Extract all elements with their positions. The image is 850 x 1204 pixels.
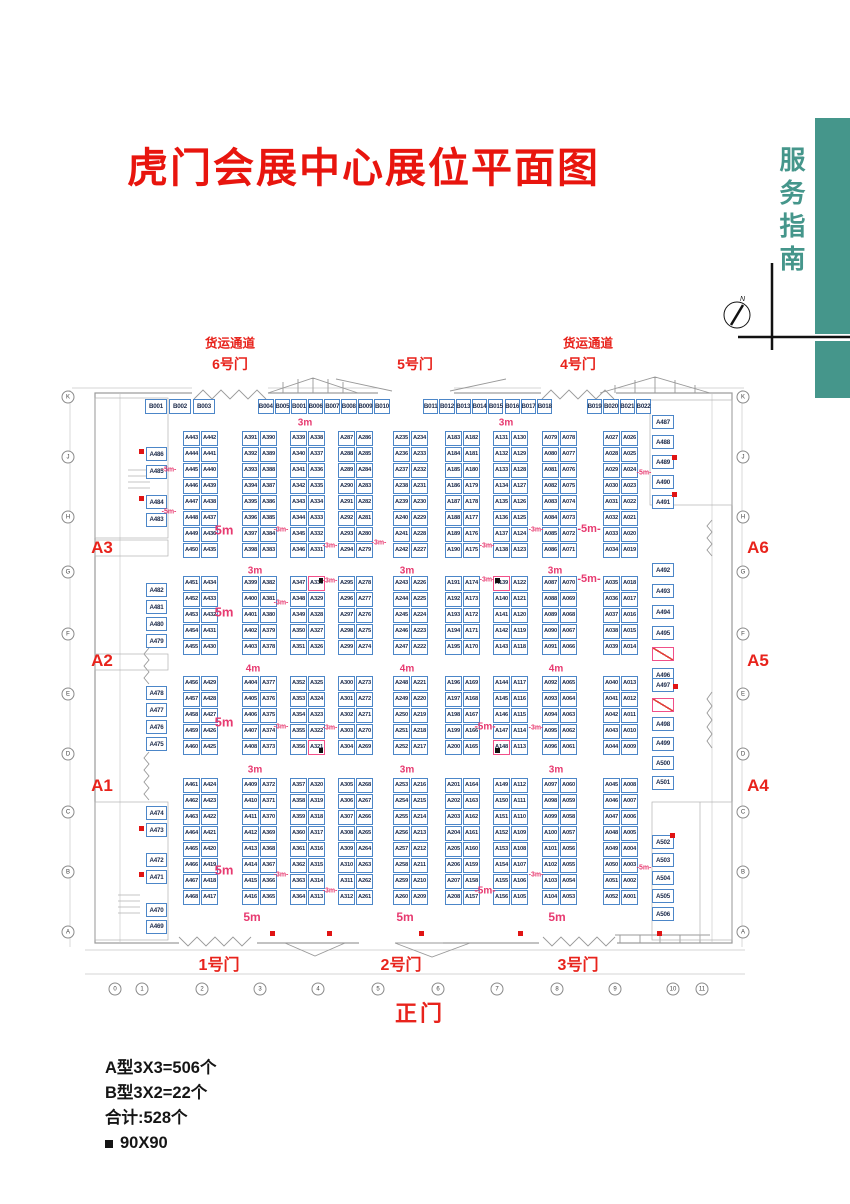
booth-A023: A023 <box>621 479 638 494</box>
booth-A245: A245 <box>393 608 410 623</box>
booth-A055: A055 <box>560 858 577 873</box>
booth-A345: A345 <box>290 527 307 542</box>
booth-A304: A304 <box>338 740 355 755</box>
booth-A404: A404 <box>242 676 259 691</box>
booth-A424: A424 <box>201 778 218 793</box>
axis-label: 9 <box>609 983 622 996</box>
booth-A172: A172 <box>463 608 480 623</box>
booth-A002: A002 <box>621 874 638 889</box>
booth-A344: A344 <box>290 511 307 526</box>
booth-A108: A108 <box>511 842 528 857</box>
dimension-label: 3m <box>400 765 414 776</box>
booth-A178: A178 <box>463 495 480 510</box>
booth-A065: A065 <box>560 676 577 691</box>
booth-A375: A375 <box>260 708 277 723</box>
booth-A120: A120 <box>511 608 528 623</box>
booth-A231: A231 <box>411 479 428 494</box>
booth-A049: A049 <box>603 842 620 857</box>
booth-A140: A140 <box>493 592 510 607</box>
booth-A435: A435 <box>201 543 218 558</box>
booth-A227: A227 <box>411 543 428 558</box>
booth-A242: A242 <box>393 543 410 558</box>
booth-A054: A054 <box>560 874 577 889</box>
booth-A399: A399 <box>242 576 259 591</box>
dimension-label: 5m <box>396 910 413 924</box>
booth-A280: A280 <box>356 527 373 542</box>
booth-A105: A105 <box>511 890 528 905</box>
booth-A346: A346 <box>290 543 307 558</box>
booth-B001: B001 <box>291 399 307 414</box>
booth-A408: A408 <box>242 740 259 755</box>
booth-A317: A317 <box>308 826 325 841</box>
booth-A056: A056 <box>560 842 577 857</box>
booth-A282: A282 <box>356 495 373 510</box>
booth-A386: A386 <box>260 495 277 510</box>
booth-B006: B006 <box>308 399 324 414</box>
service-banner-bar-small <box>815 341 850 398</box>
booth-A299: A299 <box>338 640 355 655</box>
booth-A350: A350 <box>290 624 307 639</box>
booth-A185: A185 <box>445 463 462 478</box>
booth-A413: A413 <box>242 842 259 857</box>
dimension-label: -3m- <box>274 724 289 731</box>
dimension-label: -3m- <box>323 888 338 895</box>
booth-A367: A367 <box>260 858 277 873</box>
booth-A428: A428 <box>201 692 218 707</box>
booth-A169: A169 <box>463 676 480 691</box>
booth-A447: A447 <box>183 495 200 510</box>
door-label-top: 4号门 <box>560 354 596 374</box>
wall-pillar-icon <box>139 449 144 454</box>
booth-A370: A370 <box>260 810 277 825</box>
axis-label: F <box>737 628 750 641</box>
legend-line-b: B型3X2=22个 <box>105 1081 216 1106</box>
wall-pillar-icon <box>327 931 332 936</box>
booth-A309: A309 <box>338 842 355 857</box>
dimension-label: -5m- <box>637 865 652 872</box>
booth-A074: A074 <box>560 495 577 510</box>
booth-A400: A400 <box>242 592 259 607</box>
booth-A454: A454 <box>183 624 200 639</box>
booth-A500: A500 <box>652 756 674 770</box>
legend: A型3X3=506个 B型3X2=22个 合计:528个 90X90 <box>105 1056 216 1156</box>
dimension-label: -3m- <box>529 872 544 879</box>
booth-A258: A258 <box>393 858 410 873</box>
booth-A278: A278 <box>356 576 373 591</box>
wall-pillar-icon <box>139 872 144 877</box>
booth-A356: A356 <box>290 740 307 755</box>
booth-A134: A134 <box>493 479 510 494</box>
booth-A307: A307 <box>338 810 355 825</box>
booth-A377: A377 <box>260 676 277 691</box>
booth-A274: A274 <box>356 640 373 655</box>
booth-A360: A360 <box>290 826 307 841</box>
booth-A232: A232 <box>411 463 428 478</box>
booth-A209: A209 <box>411 890 428 905</box>
wall-pillar-icon <box>270 931 275 936</box>
booth-A029: A029 <box>603 463 620 478</box>
booth-A127: A127 <box>511 479 528 494</box>
axis-label: 4 <box>312 983 325 996</box>
booth-A349: A349 <box>290 608 307 623</box>
booth-A025: A025 <box>621 447 638 462</box>
booth-B007: B007 <box>324 399 340 414</box>
booth-A057: A057 <box>560 826 577 841</box>
booth-A290: A290 <box>338 479 355 494</box>
crossed-booth <box>652 698 674 712</box>
booth-A075: A075 <box>560 479 577 494</box>
booth-A225: A225 <box>411 592 428 607</box>
pillar-square-icon <box>319 748 324 753</box>
booth-A296: A296 <box>338 592 355 607</box>
axis-label: C <box>62 806 75 819</box>
zone-label: A1 <box>91 776 113 796</box>
booth-A079: A079 <box>542 431 559 446</box>
booth-A239: A239 <box>393 495 410 510</box>
booth-A480: A480 <box>146 617 167 631</box>
dimension-label: -3m- <box>323 725 338 732</box>
booth-A486: A486 <box>146 447 167 461</box>
booth-A305: A305 <box>338 778 355 793</box>
booth-A083: A083 <box>542 495 559 510</box>
zone-label: A6 <box>747 538 769 558</box>
booth-A078: A078 <box>560 431 577 446</box>
booth-A100: A100 <box>542 826 559 841</box>
booth-A167: A167 <box>463 708 480 723</box>
dimension-label: -5m- <box>162 509 177 516</box>
booth-A421: A421 <box>201 826 218 841</box>
booth-A398: A398 <box>242 543 259 558</box>
booth-A256: A256 <box>393 826 410 841</box>
booth-A123: A123 <box>511 543 528 558</box>
booth-A011: A011 <box>621 708 638 723</box>
booth-A270: A270 <box>356 724 373 739</box>
crossed-booth <box>652 647 674 661</box>
axis-label: E <box>62 688 75 701</box>
axis-label: 8 <box>551 983 564 996</box>
booth-A236: A236 <box>393 447 410 462</box>
booth-A416: A416 <box>242 890 259 905</box>
booth-A052: A052 <box>603 890 620 905</box>
booth-A457: A457 <box>183 692 200 707</box>
booth-A357: A357 <box>290 778 307 793</box>
dimension-label: -3m- <box>480 577 495 584</box>
booth-A482: A482 <box>146 583 167 597</box>
booth-A453: A453 <box>183 608 200 623</box>
booth-A008: A008 <box>621 778 638 793</box>
booth-A028: A028 <box>603 447 620 462</box>
booth-A006: A006 <box>621 810 638 825</box>
booth-A254: A254 <box>393 794 410 809</box>
booth-A315: A315 <box>308 858 325 873</box>
booth-A334: A334 <box>308 495 325 510</box>
pillar-square-icon <box>105 1140 113 1148</box>
booth-A348: A348 <box>290 592 307 607</box>
booth-A148: A148 <box>493 740 510 755</box>
booth-A469: A469 <box>146 920 167 934</box>
axis-label: E <box>737 688 750 701</box>
booth-A080: A080 <box>542 447 559 462</box>
booth-A144: A144 <box>493 676 510 691</box>
booth-A015: A015 <box>621 624 638 639</box>
dimension-label: 5m <box>215 523 234 538</box>
booth-A306: A306 <box>338 794 355 809</box>
booth-A380: A380 <box>260 608 277 623</box>
booth-B009: B009 <box>358 399 374 414</box>
booth-A086: A086 <box>542 543 559 558</box>
booth-A449: A449 <box>183 527 200 542</box>
booth-A233: A233 <box>411 447 428 462</box>
booth-A249: A249 <box>393 692 410 707</box>
booth-A202: A202 <box>445 794 462 809</box>
booth-A150: A150 <box>493 794 510 809</box>
pillar-square-icon <box>495 578 500 583</box>
booth-A210: A210 <box>411 874 428 889</box>
booth-A244: A244 <box>393 592 410 607</box>
booth-A275: A275 <box>356 624 373 639</box>
booth-A068: A068 <box>560 608 577 623</box>
booth-A464: A464 <box>183 826 200 841</box>
axis-label: G <box>737 566 750 579</box>
booth-B010: B010 <box>374 399 390 414</box>
booth-A047: A047 <box>603 810 620 825</box>
booth-A291: A291 <box>338 495 355 510</box>
booth-A149: A149 <box>493 778 510 793</box>
booth-A285: A285 <box>356 447 373 462</box>
booth-A406: A406 <box>242 708 259 723</box>
wall-pillar-icon <box>670 833 675 838</box>
booth-A287: A287 <box>338 431 355 446</box>
booth-A183: A183 <box>445 431 462 446</box>
booth-B020: B020 <box>603 399 618 414</box>
booth-A372: A372 <box>260 778 277 793</box>
booth-A373: A373 <box>260 740 277 755</box>
booth-A017: A017 <box>621 592 638 607</box>
booth-A077: A077 <box>560 447 577 462</box>
booth-A039: A039 <box>603 640 620 655</box>
booth-A497: A497 <box>652 678 674 692</box>
axis-label: K <box>737 391 750 404</box>
dimension-label: -5m- <box>577 573 600 585</box>
booth-A466: A466 <box>183 858 200 873</box>
booth-A326: A326 <box>308 640 325 655</box>
booth-A174: A174 <box>463 576 480 591</box>
booth-A329: A329 <box>308 592 325 607</box>
booth-A378: A378 <box>260 640 277 655</box>
booth-A142: A142 <box>493 624 510 639</box>
booth-A031: A031 <box>603 495 620 510</box>
booth-A250: A250 <box>393 708 410 723</box>
booth-A115: A115 <box>511 708 528 723</box>
booth-A328: A328 <box>308 608 325 623</box>
booth-A027: A027 <box>603 431 620 446</box>
dimension-label: -5m- <box>162 467 177 474</box>
zone-label: A3 <box>91 538 113 558</box>
booth-A262: A262 <box>356 874 373 889</box>
wall-pillar-icon <box>672 492 677 497</box>
booth-A188: A188 <box>445 511 462 526</box>
booth-A116: A116 <box>511 692 528 707</box>
booth-A197: A197 <box>445 692 462 707</box>
booth-A093: A093 <box>542 692 559 707</box>
booth-A423: A423 <box>201 794 218 809</box>
legend-square-note: 90X90 <box>105 1131 216 1156</box>
booth-A206: A206 <box>445 858 462 873</box>
booth-A073: A073 <box>560 511 577 526</box>
booth-A168: A168 <box>463 692 480 707</box>
zone-label: A4 <box>747 776 769 796</box>
booth-A170: A170 <box>463 640 480 655</box>
booth-A220: A220 <box>411 692 428 707</box>
dimension-label: -5m- <box>637 470 652 477</box>
booth-A152: A152 <box>493 826 510 841</box>
booth-A478: A478 <box>146 686 167 700</box>
booth-A443: A443 <box>183 431 200 446</box>
booth-A070: A070 <box>560 576 577 591</box>
dimension-label: -3m- <box>323 543 338 550</box>
booth-A230: A230 <box>411 495 428 510</box>
axis-label: 5 <box>372 983 385 996</box>
booth-A013: A013 <box>621 676 638 691</box>
booth-A240: A240 <box>393 511 410 526</box>
booth-B005: B005 <box>275 399 291 414</box>
booth-A323: A323 <box>308 708 325 723</box>
booth-A251: A251 <box>393 724 410 739</box>
booth-A269: A269 <box>356 740 373 755</box>
booth-A438: A438 <box>201 495 218 510</box>
booth-A476: A476 <box>146 720 167 734</box>
wall-pillar-icon <box>673 684 678 689</box>
wall-pillar-icon <box>518 931 523 936</box>
booth-A352: A352 <box>290 676 307 691</box>
booth-A470: A470 <box>146 903 167 917</box>
main-gate-label: 正门 <box>395 996 445 1028</box>
booth-A342: A342 <box>290 479 307 494</box>
wall-pillar-icon <box>139 826 144 831</box>
freight-passage-label: 货运通道 <box>205 333 255 352</box>
booth-A063: A063 <box>560 708 577 723</box>
booth-A223: A223 <box>411 624 428 639</box>
booth-A293: A293 <box>338 527 355 542</box>
booth-A037: A037 <box>603 608 620 623</box>
booth-A422: A422 <box>201 810 218 825</box>
booth-A465: A465 <box>183 842 200 857</box>
booth-A215: A215 <box>411 794 428 809</box>
booth-A045: A045 <box>603 778 620 793</box>
booth-A277: A277 <box>356 592 373 607</box>
booth-A314: A314 <box>308 874 325 889</box>
booth-A196: A196 <box>445 676 462 691</box>
booth-A099: A099 <box>542 810 559 825</box>
booth-A186: A186 <box>445 479 462 494</box>
booth-A004: A004 <box>621 842 638 857</box>
booth-A076: A076 <box>560 463 577 478</box>
booth-A316: A316 <box>308 842 325 857</box>
booth-A383: A383 <box>260 543 277 558</box>
booth-A450: A450 <box>183 543 200 558</box>
axis-label: A <box>737 926 750 939</box>
legend-line-total: 合计:528个 <box>105 1106 216 1131</box>
booth-A320: A320 <box>308 778 325 793</box>
booth-B022: B022 <box>636 399 651 414</box>
booth-A351: A351 <box>290 640 307 655</box>
booth-A069: A069 <box>560 592 577 607</box>
booth-A084: A084 <box>542 511 559 526</box>
axis-label: 2 <box>196 983 209 996</box>
booth-A034: A034 <box>603 543 620 558</box>
dimension-label: -3m- <box>274 527 289 534</box>
booth-A164: A164 <box>463 778 480 793</box>
booth-A459: A459 <box>183 724 200 739</box>
booth-A235: A235 <box>393 431 410 446</box>
booth-A341: A341 <box>290 463 307 478</box>
wall-pillar-icon <box>419 931 424 936</box>
service-guide-label: 服务指南 <box>773 146 810 278</box>
booth-A207: A207 <box>445 874 462 889</box>
booth-A097: A097 <box>542 778 559 793</box>
booth-A041: A041 <box>603 692 620 707</box>
booth-A473: A473 <box>146 823 167 837</box>
booth-A101: A101 <box>542 842 559 857</box>
booth-A318: A318 <box>308 810 325 825</box>
booth-A095: A095 <box>542 724 559 739</box>
booth-A359: A359 <box>290 810 307 825</box>
booth-A208: A208 <box>445 890 462 905</box>
booth-A053: A053 <box>560 890 577 905</box>
booth-A040: A040 <box>603 676 620 691</box>
booth-A128: A128 <box>511 463 528 478</box>
booth-A137: A137 <box>493 527 510 542</box>
booth-A145: A145 <box>493 692 510 707</box>
dimension-label: 5m <box>215 605 234 620</box>
booth-A216: A216 <box>411 778 428 793</box>
booth-A092: A092 <box>542 676 559 691</box>
booth-A265: A265 <box>356 826 373 841</box>
booth-A085: A085 <box>542 527 559 542</box>
booth-A294: A294 <box>338 543 355 558</box>
booth-A392: A392 <box>242 447 259 462</box>
booth-A272: A272 <box>356 692 373 707</box>
booth-A358: A358 <box>290 794 307 809</box>
booth-A362: A362 <box>290 858 307 873</box>
booth-A368: A368 <box>260 842 277 857</box>
booth-B013: B013 <box>456 399 471 414</box>
booth-A311: A311 <box>338 874 355 889</box>
axis-label: B <box>62 866 75 879</box>
booth-A018: A018 <box>621 576 638 591</box>
booth-A257: A257 <box>393 842 410 857</box>
booth-A058: A058 <box>560 810 577 825</box>
axis-label: K <box>62 391 75 404</box>
dimension-label: 3m <box>298 418 312 429</box>
axis-label: C <box>737 806 750 819</box>
booth-A109: A109 <box>511 826 528 841</box>
booth-A067: A067 <box>560 624 577 639</box>
booth-B015: B015 <box>488 399 503 414</box>
booth-A439: A439 <box>201 479 218 494</box>
booth-A462: A462 <box>183 794 200 809</box>
booth-A295: A295 <box>338 576 355 591</box>
booth-A444: A444 <box>183 447 200 462</box>
booth-A411: A411 <box>242 810 259 825</box>
dimension-label: 5m <box>215 715 234 730</box>
booth-A022: A022 <box>621 495 638 510</box>
booth-B021: B021 <box>620 399 635 414</box>
booth-A420: A420 <box>201 842 218 857</box>
booth-A211: A211 <box>411 858 428 873</box>
booth-B004: B004 <box>258 399 274 414</box>
booth-A441: A441 <box>201 447 218 462</box>
